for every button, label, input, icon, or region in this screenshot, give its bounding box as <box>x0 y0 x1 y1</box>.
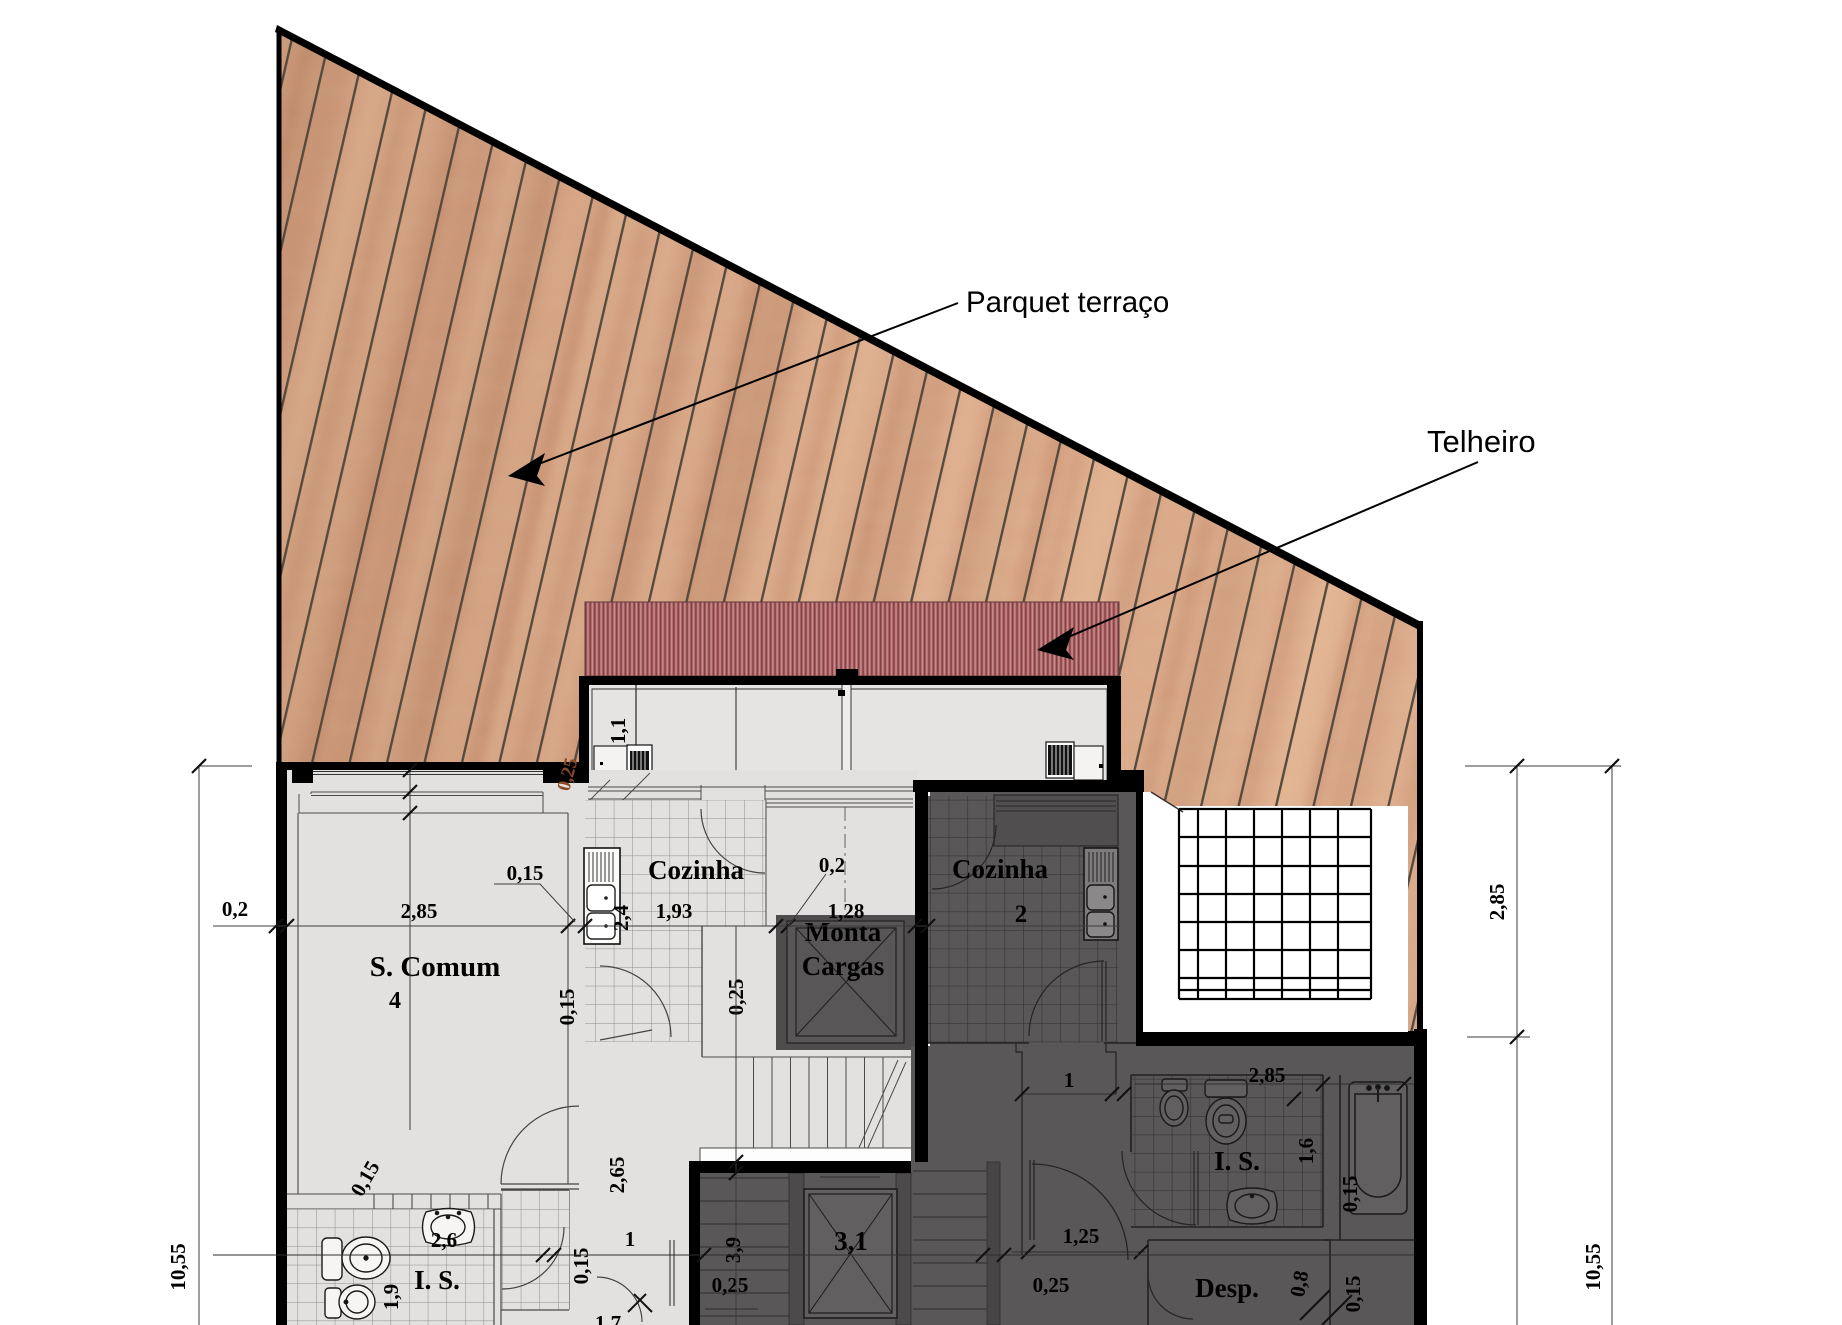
svg-text:0,15: 0,15 <box>1338 1176 1362 1213</box>
svg-text:I. S.: I. S. <box>414 1265 460 1295</box>
svg-text:Telheiro: Telheiro <box>1427 424 1536 459</box>
svg-text:0,25: 0,25 <box>712 1273 749 1297</box>
svg-text:1,25: 1,25 <box>1063 1224 1100 1248</box>
svg-text:0,2: 0,2 <box>819 853 845 877</box>
svg-text:3,1: 3,1 <box>834 1226 868 1256</box>
svg-text:Cozinha: Cozinha <box>952 854 1049 884</box>
svg-text:10,55: 10,55 <box>1581 1243 1605 1290</box>
svg-text:0,8: 0,8 <box>1285 1269 1313 1299</box>
svg-text:2,65: 2,65 <box>605 1157 629 1194</box>
svg-text:2,85: 2,85 <box>1249 1063 1286 1087</box>
svg-text:1: 1 <box>625 1227 636 1251</box>
svg-text:Parquet terraço: Parquet terraço <box>966 286 1169 319</box>
svg-text:Cargas: Cargas <box>802 951 885 981</box>
svg-text:2,85: 2,85 <box>1485 884 1509 921</box>
svg-text:10,55: 10,55 <box>166 1243 190 1290</box>
svg-text:0,2: 0,2 <box>222 897 248 921</box>
svg-text:0,15: 0,15 <box>507 861 544 885</box>
svg-text:1,7: 1,7 <box>595 1311 621 1325</box>
svg-text:3,9: 3,9 <box>721 1237 745 1263</box>
svg-text:2,85: 2,85 <box>401 899 438 923</box>
svg-text:2,6: 2,6 <box>431 1228 457 1252</box>
svg-text:0,15: 0,15 <box>569 1248 593 1285</box>
svg-text:2: 2 <box>1015 901 1028 928</box>
svg-text:1: 1 <box>1064 1068 1075 1092</box>
svg-text:0,25: 0,25 <box>1033 1273 1070 1297</box>
svg-text:2,4: 2,4 <box>609 904 633 931</box>
svg-text:1,93: 1,93 <box>656 899 693 923</box>
svg-text:0,15: 0,15 <box>555 989 579 1026</box>
svg-text:0,15: 0,15 <box>1341 1276 1365 1313</box>
svg-text:I. S.: I. S. <box>1214 1146 1260 1176</box>
svg-text:Cozinha: Cozinha <box>648 855 745 885</box>
svg-text:1,28: 1,28 <box>828 899 865 923</box>
svg-text:Desp.: Desp. <box>1195 1273 1259 1303</box>
svg-text:4: 4 <box>389 988 401 1014</box>
svg-text:S. Comum: S. Comum <box>370 951 501 983</box>
svg-text:1,6: 1,6 <box>1294 1138 1318 1164</box>
svg-text:1,1: 1,1 <box>606 718 630 744</box>
svg-text:1,9: 1,9 <box>379 1284 403 1310</box>
